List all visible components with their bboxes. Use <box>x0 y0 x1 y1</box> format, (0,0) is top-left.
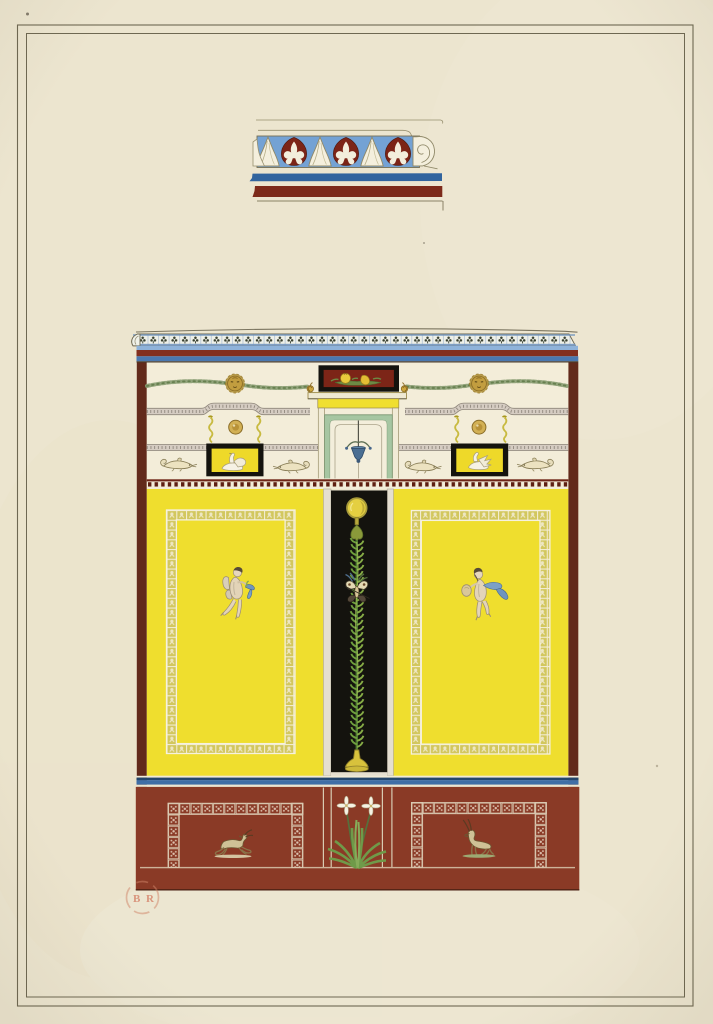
svg-text:B: B <box>133 893 141 905</box>
svg-text:R: R <box>146 893 155 905</box>
